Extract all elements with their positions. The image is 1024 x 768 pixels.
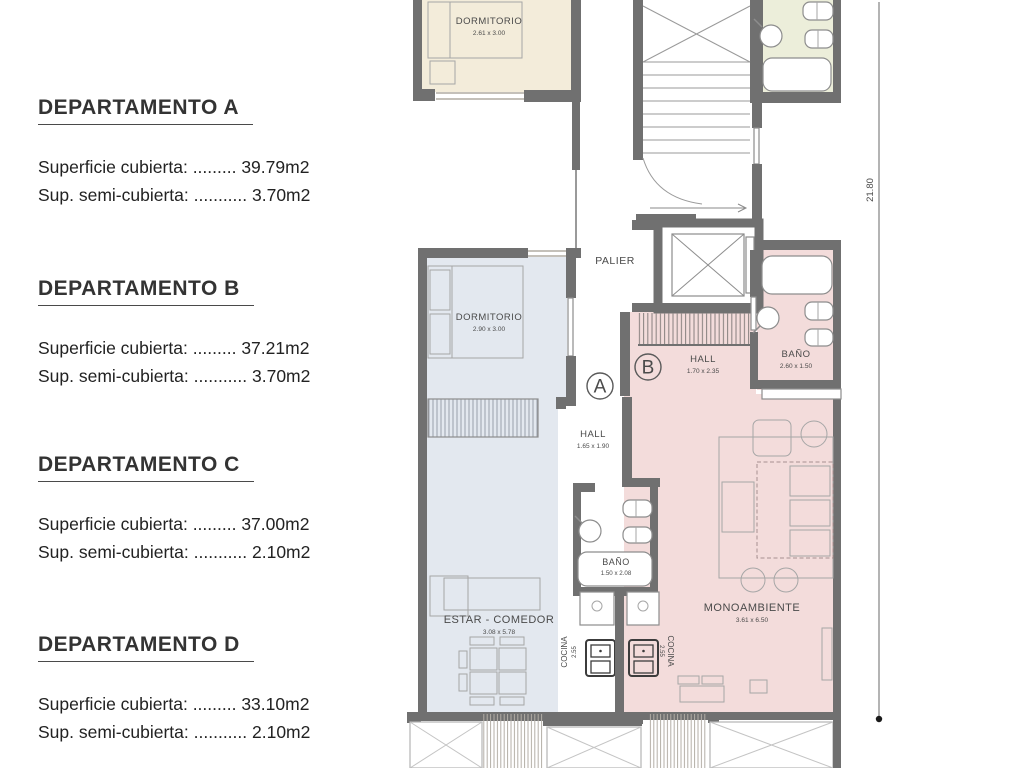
dormitorio-a-label: DORMITORIO — [456, 312, 523, 323]
palier: PALIER — [595, 255, 635, 267]
monoambiente-dims: 3.61 x 6.50 — [736, 617, 769, 624]
balcony-middle — [547, 727, 641, 768]
elevator — [632, 220, 760, 312]
room-cocina-c: COCINA 2.55 — [560, 590, 624, 713]
floor-plan: DORMITORIO 2.61 x 3.00 — [0, 0, 1024, 768]
bano-b-dims: 2.60 x 1.50 — [780, 363, 813, 370]
dimension-total-label: 21.80 — [865, 178, 876, 202]
cocina-c-label: COCINA — [560, 636, 569, 668]
hall-b-label: HALL — [690, 354, 716, 365]
hall-b-dims: 1.70 x 2.35 — [687, 368, 720, 375]
unit-marker-a-letter: A — [594, 377, 607, 398]
hall-a-label: HALL — [580, 429, 606, 440]
closet — [428, 399, 538, 437]
hall-a-dims: 1.65 x 1.90 — [577, 443, 610, 450]
dormitorio-a-dims: 2.90 x 3.00 — [473, 326, 506, 333]
unit-marker-a: A — [587, 373, 613, 399]
dimension-line: 21.80 — [865, 2, 882, 722]
cocina-c-dims: 2.55 — [572, 646, 578, 658]
dormitorio-top-dims: 2.61 x 3.00 — [473, 30, 506, 37]
unit-marker-b-letter: B — [642, 358, 655, 379]
wall-stub — [572, 98, 580, 170]
estar-comedor-label: ESTAR - COMEDOR — [444, 614, 555, 626]
cocina-b-label: COCINA — [666, 635, 675, 667]
corridor-wall — [752, 103, 762, 223]
cocina-b-dims: 2.55 — [658, 645, 664, 657]
estar-comedor-dims: 3.08 x 5.78 — [483, 629, 516, 636]
palier-label: PALIER — [595, 255, 635, 267]
monoambiente-label: MONOAMBIENTE — [704, 602, 800, 614]
stairwell — [633, 0, 763, 224]
bano-b-label: BAÑO — [782, 349, 811, 360]
bano-c-dims: 1.50 x 2.08 — [601, 570, 632, 577]
bano-c-label: BAÑO — [602, 557, 630, 567]
balcony-right — [710, 722, 833, 768]
balcony-left — [410, 722, 482, 768]
dormitorio-top-label: DORMITORIO — [456, 16, 523, 27]
